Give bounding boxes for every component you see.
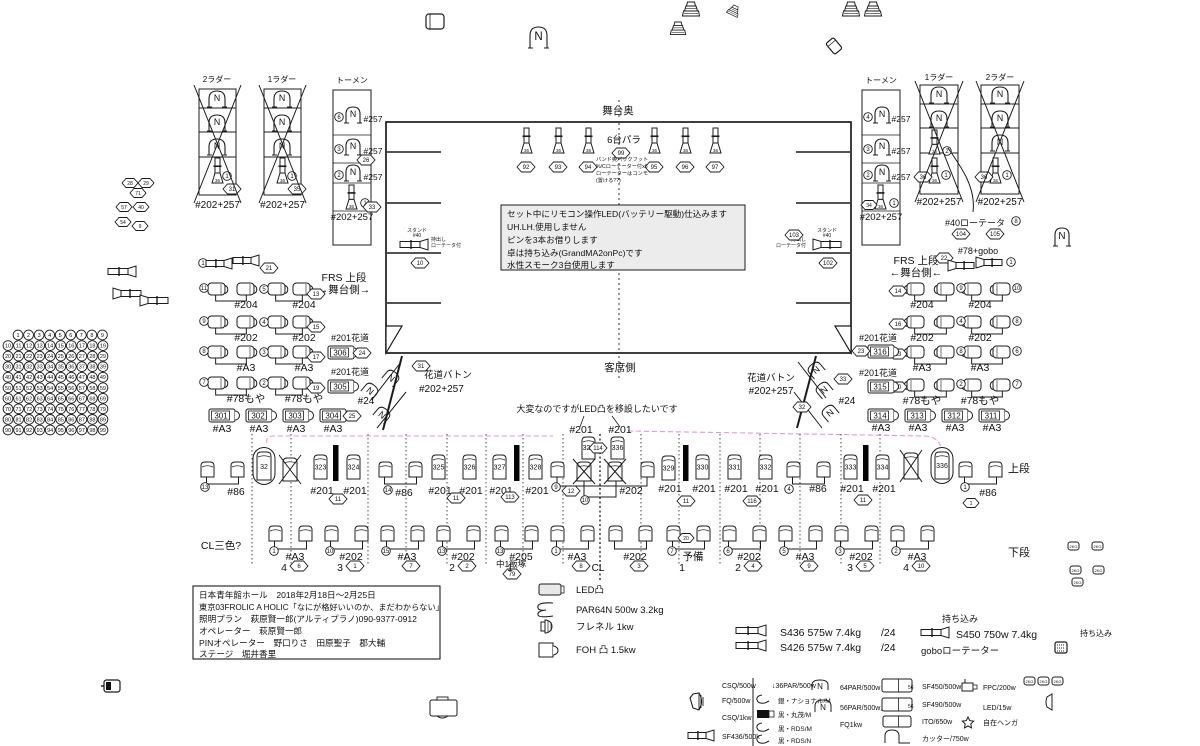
- svg-text:48: 48: [89, 375, 95, 381]
- svg-text:#24: #24: [839, 396, 856, 407]
- svg-text:照明プラン 萩原賢一郎(アルティプラノ)090-9377-0: 照明プラン 萩原賢一郎(アルティプラノ)090-9377-0912: [199, 613, 417, 624]
- svg-text:#A3: #A3: [983, 422, 1002, 434]
- svg-text:302: 302: [251, 412, 265, 421]
- svg-text:#204: #204: [292, 299, 316, 311]
- svg-text:CSQ/500w: CSQ/500w: [722, 683, 757, 690]
- svg-text:33: 33: [369, 205, 376, 211]
- svg-text:ステージ 堀井香里: ステージ 堀井香里: [199, 648, 277, 659]
- svg-text:17: 17: [313, 355, 320, 361]
- svg-text:1: 1: [16, 333, 19, 339]
- svg-text:93: 93: [555, 165, 562, 171]
- svg-text:36: 36: [586, 148, 592, 153]
- svg-text:14: 14: [385, 488, 392, 494]
- svg-text:36: 36: [932, 178, 938, 183]
- svg-text:24: 24: [359, 351, 366, 357]
- svg-text:1: 1: [679, 562, 685, 574]
- svg-text:96: 96: [68, 428, 74, 434]
- svg-text:93: 93: [37, 428, 43, 434]
- svg-text:92: 92: [26, 428, 32, 434]
- svg-text:#202+257: #202+257: [195, 200, 240, 211]
- svg-text:12: 12: [568, 489, 575, 495]
- svg-text:312: 312: [947, 412, 961, 421]
- svg-text:N: N: [350, 141, 356, 151]
- svg-text:#40: #40: [823, 233, 832, 239]
- svg-text:18: 18: [89, 344, 95, 350]
- svg-text:303: 303: [288, 412, 302, 421]
- svg-text:%/Cローテーター付x6: %/Cローテーター付x6: [596, 162, 648, 170]
- svg-text:#A3: #A3: [971, 362, 990, 374]
- svg-text:331: 331: [729, 464, 741, 471]
- svg-text:#202+257: #202+257: [419, 384, 464, 395]
- svg-text:52: 52: [26, 386, 32, 392]
- svg-text:#202+257: #202+257: [749, 386, 794, 397]
- svg-text:116: 116: [747, 499, 757, 505]
- svg-text:34: 34: [47, 365, 53, 371]
- svg-text:中1飯塚: 中1飯塚: [496, 559, 527, 569]
- svg-text:86: 86: [68, 417, 74, 423]
- svg-text:セット中にリモコン操作LED(バッテリー駆動)仕込みます: セット中にリモコン操作LED(バッテリー駆動)仕込みます: [507, 208, 727, 219]
- svg-text:28: 28: [89, 354, 95, 360]
- svg-text:83: 83: [37, 417, 43, 423]
- svg-text:11: 11: [683, 499, 690, 505]
- svg-text:#257: #257: [364, 114, 383, 124]
- svg-text:24: 24: [47, 354, 53, 360]
- svg-text:#201: #201: [724, 483, 748, 495]
- svg-text:98: 98: [89, 428, 95, 434]
- svg-text:56: 56: [908, 685, 914, 691]
- svg-text:日本青年館ホール 2018年2月18日～2月25日: 日本青年館ホール 2018年2月18日～2月25日: [199, 589, 376, 600]
- svg-text:76: 76: [68, 407, 74, 413]
- svg-text:フレネル 1kw: フレネル 1kw: [576, 622, 634, 633]
- svg-text:66: 66: [68, 396, 74, 402]
- svg-text:84: 84: [47, 417, 53, 423]
- svg-text:29: 29: [143, 181, 149, 187]
- svg-text:19: 19: [100, 344, 106, 350]
- svg-text:113: 113: [505, 495, 515, 501]
- svg-text:#202+257: #202+257: [260, 200, 305, 211]
- svg-text:#202+257: #202+257: [917, 197, 962, 208]
- svg-text:#A3: #A3: [909, 422, 928, 434]
- svg-text:持ち込み: 持ち込み: [942, 613, 978, 624]
- svg-text:50: 50: [5, 386, 11, 392]
- svg-text:61: 61: [15, 396, 21, 402]
- svg-text:26: 26: [363, 158, 370, 164]
- svg-text:11: 11: [860, 498, 867, 504]
- svg-text:87: 87: [79, 417, 85, 423]
- svg-text:#A3: #A3: [250, 423, 269, 435]
- svg-text:45: 45: [58, 375, 64, 381]
- svg-text:92: 92: [523, 165, 530, 171]
- svg-text:#86: #86: [395, 487, 413, 499]
- svg-text:19: 19: [313, 386, 320, 392]
- svg-text:13: 13: [439, 549, 446, 555]
- svg-text:14: 14: [895, 289, 902, 295]
- svg-text:14: 14: [47, 344, 53, 350]
- svg-text:102: 102: [823, 261, 834, 267]
- svg-text:花道バトン: 花道バトン: [747, 372, 795, 384]
- svg-text:トーメン: トーメン: [865, 76, 897, 85]
- svg-text:CL三色?: CL三色?: [201, 539, 241, 552]
- svg-text:#257: #257: [892, 114, 911, 124]
- svg-text:33: 33: [37, 365, 43, 371]
- svg-text:1ラダー: 1ラダー: [925, 72, 953, 82]
- svg-text:25: 25: [58, 354, 64, 360]
- svg-text:#86: #86: [979, 487, 997, 499]
- svg-text:44: 44: [47, 375, 53, 381]
- svg-text:4: 4: [281, 562, 287, 574]
- svg-text:4: 4: [903, 562, 909, 574]
- svg-text:9: 9: [139, 224, 142, 230]
- svg-text:313: 313: [910, 412, 924, 421]
- svg-text:ローテータ付: ローテータ付: [776, 242, 806, 249]
- svg-text:43: 43: [37, 375, 43, 381]
- svg-text:#A3: #A3: [946, 422, 965, 434]
- svg-text:95: 95: [58, 428, 64, 434]
- svg-text:38: 38: [89, 365, 95, 371]
- svg-text:FRS 上段: FRS 上段: [322, 271, 367, 284]
- svg-text:#202+257: #202+257: [331, 212, 374, 223]
- svg-text:#202: #202: [968, 332, 992, 344]
- svg-text:#202: #202: [619, 485, 643, 497]
- svg-text:304: 304: [325, 412, 339, 421]
- svg-text:#204: #204: [968, 299, 992, 311]
- svg-text:←舞台側←: ←舞台側←: [890, 266, 943, 279]
- svg-text:25: 25: [349, 414, 356, 420]
- svg-text:#201: #201: [658, 483, 682, 495]
- svg-text:97: 97: [712, 165, 719, 171]
- svg-text:N: N: [279, 117, 285, 127]
- svg-text:65: 65: [58, 396, 64, 402]
- svg-text:332: 332: [760, 464, 772, 471]
- svg-text:#40: #40: [413, 233, 422, 239]
- svg-text:2KG: 2KG: [1069, 544, 1077, 549]
- svg-text:FOH 凸 1.5kw: FOH 凸 1.5kw: [576, 645, 636, 656]
- svg-text:バンド奥バックフット: バンド奥バックフット: [596, 155, 648, 163]
- svg-text:9: 9: [101, 333, 104, 339]
- svg-text:10: 10: [918, 564, 925, 570]
- svg-text:7: 7: [80, 333, 83, 339]
- svg-text:黒・RDS/N: 黒・RDS/N: [778, 737, 812, 745]
- svg-text:54: 54: [47, 386, 53, 392]
- svg-text:333: 333: [845, 464, 857, 471]
- svg-text:56: 56: [908, 704, 914, 710]
- svg-text:SF490/500w: SF490/500w: [922, 702, 962, 709]
- svg-text:N: N: [936, 89, 942, 99]
- svg-text:80: 80: [5, 417, 11, 423]
- svg-text:CL: CL: [592, 563, 605, 574]
- svg-text:2KG: 2KG: [1053, 679, 1061, 684]
- svg-text:28: 28: [127, 181, 133, 187]
- svg-text:PAR64N 500w 3.2kg: PAR64N 500w 3.2kg: [576, 605, 664, 616]
- svg-text:6台パラ: 6台パラ: [607, 134, 641, 146]
- svg-text:328: 328: [530, 464, 542, 471]
- svg-text:311: 311: [985, 412, 998, 421]
- svg-text:23: 23: [37, 354, 43, 360]
- svg-text:97: 97: [79, 428, 85, 434]
- svg-text:4: 4: [48, 333, 51, 339]
- svg-text:上段: 上段: [1008, 461, 1030, 475]
- svg-text:N: N: [879, 141, 885, 151]
- svg-text:5: 5: [59, 333, 62, 339]
- svg-text:11: 11: [201, 286, 208, 292]
- svg-text:#257: #257: [364, 146, 383, 156]
- svg-text:323: 323: [315, 464, 327, 471]
- svg-text:N: N: [350, 167, 356, 177]
- svg-text:114: 114: [593, 446, 603, 452]
- svg-text:105: 105: [990, 232, 1001, 238]
- svg-text:47: 47: [79, 375, 85, 381]
- svg-text:37: 37: [79, 365, 85, 371]
- svg-text:持出し: 持出し: [431, 236, 446, 243]
- svg-text:32: 32: [799, 405, 806, 411]
- svg-text:63: 63: [37, 396, 43, 402]
- svg-text:31: 31: [15, 365, 21, 371]
- svg-text:S436 575w 7.4kg: S436 575w 7.4kg: [780, 627, 861, 639]
- svg-text:78: 78: [89, 407, 95, 413]
- svg-text:336: 336: [936, 463, 948, 470]
- svg-text:88: 88: [89, 417, 95, 423]
- svg-text:21: 21: [266, 266, 273, 272]
- svg-text:68: 68: [89, 396, 95, 402]
- svg-text:89: 89: [100, 417, 106, 423]
- svg-text:11: 11: [16, 344, 22, 350]
- svg-text:2KG: 2KG: [1073, 580, 1081, 585]
- svg-text:94: 94: [47, 428, 53, 434]
- svg-text:舞台奥: 舞台奥: [602, 104, 634, 117]
- svg-text:70: 70: [5, 407, 11, 413]
- svg-text:23: 23: [858, 349, 865, 355]
- svg-text:#A3: #A3: [295, 362, 314, 374]
- svg-text:40: 40: [5, 375, 11, 381]
- svg-text:57: 57: [121, 205, 127, 211]
- svg-text:74: 74: [47, 407, 53, 413]
- svg-text:#201: #201: [608, 424, 632, 436]
- svg-text:59: 59: [100, 386, 106, 392]
- svg-text:62: 62: [26, 396, 32, 402]
- svg-text:36: 36: [878, 204, 884, 209]
- svg-text:13: 13: [37, 344, 43, 350]
- svg-text:71: 71: [15, 407, 21, 413]
- svg-text:#201: #201: [525, 485, 549, 497]
- svg-text:カッター/750w: カッター/750w: [922, 734, 970, 743]
- svg-text:55: 55: [58, 386, 64, 392]
- svg-text:103: 103: [789, 233, 800, 239]
- svg-text:104: 104: [956, 232, 967, 238]
- svg-text:#201花道: #201花道: [859, 367, 897, 378]
- svg-text:#202+257: #202+257: [860, 212, 903, 223]
- svg-text:#A3: #A3: [287, 423, 306, 435]
- svg-text:2ラダー: 2ラダー: [986, 72, 1014, 82]
- svg-text:LED/15w: LED/15w: [983, 705, 1012, 712]
- svg-text:22: 22: [941, 256, 948, 262]
- svg-text:53: 53: [37, 386, 43, 392]
- svg-text:75: 75: [58, 407, 64, 413]
- svg-text:82: 82: [26, 417, 32, 423]
- svg-text:PINオペレーター 野口りさ 田原聖子 郡大輔: PINオペレーター 野口りさ 田原聖子 郡大輔: [199, 637, 386, 648]
- svg-text:10: 10: [1014, 286, 1021, 292]
- svg-text:11: 11: [335, 497, 342, 503]
- svg-text:goboローテーター: goboローテーター: [921, 646, 999, 657]
- svg-text:36: 36: [68, 365, 74, 371]
- svg-text:#24: #24: [358, 396, 375, 407]
- svg-text:10: 10: [327, 549, 334, 555]
- svg-text:22: 22: [26, 354, 32, 360]
- svg-text:#86: #86: [809, 483, 827, 495]
- svg-text:314: 314: [873, 412, 887, 421]
- svg-text:49: 49: [100, 375, 106, 381]
- svg-text:15: 15: [313, 325, 320, 331]
- svg-text:#78もや: #78もや: [961, 395, 1000, 407]
- svg-text:54: 54: [120, 220, 126, 226]
- svg-text:34: 34: [866, 203, 872, 209]
- svg-text:#201花道: #201花道: [331, 332, 369, 343]
- svg-text:S450 750w 7.4kg: S450 750w 7.4kg: [956, 629, 1037, 641]
- svg-text:26: 26: [68, 354, 74, 360]
- svg-text:N: N: [350, 109, 356, 119]
- svg-text:20: 20: [683, 536, 689, 542]
- svg-text:64PAR/500w: 64PAR/500w: [840, 685, 881, 692]
- svg-text:下段: 下段: [1008, 545, 1030, 559]
- svg-text:11: 11: [453, 496, 460, 502]
- svg-text:#201: #201: [569, 424, 593, 436]
- svg-text:32: 32: [260, 464, 268, 471]
- svg-text:N: N: [214, 93, 220, 103]
- svg-text:13: 13: [313, 292, 320, 298]
- svg-text:CSQ/1kw: CSQ/1kw: [722, 715, 753, 722]
- svg-text:58: 58: [89, 386, 95, 392]
- svg-text:67: 67: [79, 396, 85, 402]
- svg-text:N: N: [936, 113, 942, 123]
- svg-text:FRS 上段: FRS 上段: [894, 254, 939, 267]
- svg-text:36: 36: [713, 148, 719, 153]
- svg-text:3: 3: [38, 333, 41, 339]
- svg-text:/24: /24: [881, 627, 896, 639]
- svg-text:2: 2: [449, 562, 455, 574]
- svg-text:36: 36: [556, 148, 562, 153]
- svg-text:85: 85: [58, 417, 64, 423]
- svg-text:#201: #201: [692, 483, 716, 495]
- svg-text:324: 324: [348, 464, 360, 471]
- svg-text:↓36PAR/500w: ↓36PAR/500w: [772, 683, 817, 690]
- svg-text:36: 36: [683, 148, 689, 153]
- svg-text:301: 301: [214, 412, 228, 421]
- svg-text:96: 96: [682, 165, 689, 171]
- svg-text:#78もや: #78もや: [227, 393, 266, 405]
- svg-text:水性スモーク3台使用します: 水性スモーク3台使用します: [507, 259, 615, 270]
- svg-text:#204: #204: [910, 299, 934, 311]
- svg-text:77: 77: [79, 407, 85, 413]
- svg-text:81: 81: [15, 417, 21, 423]
- svg-text:#201: #201: [310, 485, 334, 497]
- svg-text:#201: #201: [343, 485, 367, 497]
- svg-text:#A3: #A3: [237, 362, 256, 374]
- svg-text:15: 15: [383, 549, 390, 555]
- svg-text:#201: #201: [840, 483, 864, 495]
- svg-text:3: 3: [847, 562, 853, 574]
- svg-text:大変なのですがLED凸を移設したいです: 大変なのですがLED凸を移設したいです: [516, 403, 677, 414]
- svg-text:ローテーターはコンモ: ローテーターはコンモ: [596, 169, 648, 177]
- svg-text:305: 305: [333, 383, 347, 392]
- svg-text:#257: #257: [892, 172, 911, 182]
- svg-text:35: 35: [58, 365, 64, 371]
- svg-text:1: 1: [970, 501, 973, 507]
- svg-text:72: 72: [26, 407, 32, 413]
- svg-text:SF450/500w: SF450/500w: [922, 684, 962, 691]
- svg-text:FQ1kw: FQ1kw: [840, 722, 863, 729]
- svg-text:#201花道: #201花道: [859, 332, 897, 343]
- svg-text:予備: 予備: [683, 550, 704, 563]
- svg-text:17: 17: [79, 344, 85, 350]
- svg-text:42: 42: [26, 375, 32, 381]
- svg-text:N: N: [279, 93, 285, 103]
- svg-text:#204: #204: [234, 299, 258, 311]
- svg-text:N: N: [820, 703, 826, 712]
- svg-text:16: 16: [895, 322, 902, 328]
- svg-text:#A3: #A3: [324, 423, 343, 435]
- svg-text:91: 91: [15, 428, 21, 434]
- svg-text:12: 12: [26, 344, 32, 350]
- svg-text:51: 51: [15, 386, 21, 392]
- svg-text:N: N: [879, 109, 885, 119]
- svg-text:LED凸: LED凸: [576, 585, 604, 596]
- svg-text:N: N: [534, 31, 542, 43]
- svg-text:#A3: #A3: [872, 422, 891, 434]
- svg-text:UH.LH.使用しません: UH.LH.使用しません: [507, 221, 587, 232]
- svg-text:→舞台側→: →舞台側→: [318, 283, 371, 296]
- svg-text:#78もや: #78もや: [285, 393, 324, 405]
- svg-text:8: 8: [90, 333, 93, 339]
- svg-text:#78もや: #78もや: [903, 395, 942, 407]
- svg-text:トーメン: トーメン: [336, 76, 368, 85]
- svg-text:/24: /24: [881, 642, 896, 654]
- svg-text:336: 336: [612, 445, 624, 452]
- svg-text:N: N: [997, 89, 1003, 99]
- svg-text:FQ/500w: FQ/500w: [722, 698, 751, 705]
- svg-text:FPC/200w: FPC/200w: [983, 685, 1017, 692]
- svg-text:36: 36: [280, 178, 286, 183]
- svg-text:71: 71: [135, 191, 141, 197]
- svg-text:69: 69: [100, 396, 106, 402]
- svg-text:40: 40: [138, 205, 144, 211]
- svg-text:#202+257: #202+257: [978, 197, 1023, 208]
- svg-text:N: N: [1058, 231, 1065, 242]
- svg-text:花道バトン: 花道バトン: [424, 369, 472, 381]
- svg-text:29: 29: [100, 354, 106, 360]
- svg-text:326: 326: [464, 464, 476, 471]
- svg-text:13: 13: [202, 485, 209, 491]
- svg-text:2KG: 2KG: [1093, 544, 1101, 549]
- svg-text:オペレーター 萩原賢一郎: オペレーター 萩原賢一郎: [199, 625, 302, 636]
- svg-text:21: 21: [15, 354, 21, 360]
- svg-text:36: 36: [349, 204, 355, 209]
- svg-text:13: 13: [497, 549, 504, 555]
- svg-text:46: 46: [68, 375, 74, 381]
- svg-text:N: N: [214, 117, 220, 127]
- svg-text:#202: #202: [234, 332, 258, 344]
- svg-text:36: 36: [993, 178, 999, 183]
- svg-text:329: 329: [663, 465, 675, 472]
- svg-text:306: 306: [333, 349, 347, 358]
- svg-text:327: 327: [494, 464, 506, 471]
- svg-text:卓は持ち込み(GrandMA2onPc)です: 卓は持ち込み(GrandMA2onPc)です: [507, 247, 643, 258]
- svg-text:15: 15: [58, 344, 64, 350]
- svg-text:64: 64: [47, 396, 53, 402]
- svg-text:36: 36: [215, 178, 221, 183]
- svg-text:東京03FROLIC A HOLIC「なにが格好いいのか、ま: 東京03FROLIC A HOLIC「なにが格好いいのか、まだわからない」: [199, 602, 444, 612]
- svg-text:99: 99: [100, 428, 106, 434]
- svg-text:79: 79: [100, 407, 106, 413]
- svg-text:32: 32: [26, 365, 32, 371]
